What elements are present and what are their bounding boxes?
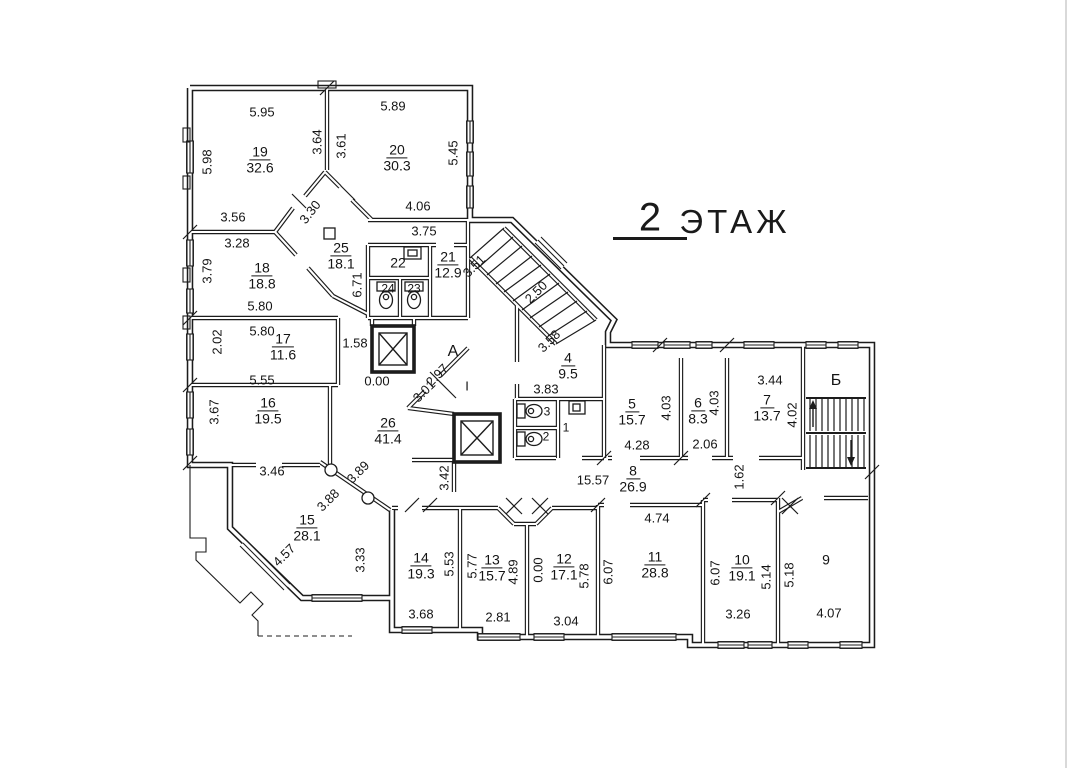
dimension-label: 5.55	[249, 373, 274, 388]
room-label: 1619.5	[254, 395, 281, 426]
column-icon	[324, 228, 335, 239]
dimension-label: 4.89	[506, 559, 521, 584]
room-area: 13.7	[753, 409, 780, 424]
dimension-label: 2.02	[210, 329, 225, 354]
floor-number: 2	[639, 196, 661, 241]
room-number: 25	[330, 240, 352, 256]
room-label: 1128.8	[641, 549, 668, 580]
door-pivot-icon	[325, 464, 337, 476]
room-number: 26	[377, 415, 399, 431]
dimension-label: 1.62	[732, 464, 747, 489]
dimension-label: 5.80	[247, 299, 272, 314]
room-number: 24	[381, 283, 394, 296]
room-area: 41.4	[374, 432, 401, 447]
room-number: 20	[386, 142, 408, 158]
room-number: 13	[481, 552, 503, 568]
room-label: 1818.8	[248, 260, 275, 291]
room-label: 515.7	[618, 396, 645, 427]
room-label: 1	[563, 422, 570, 435]
room-label: 9	[822, 552, 830, 567]
dimension-label: 4.07	[816, 606, 841, 621]
dimension-label: 3.75	[411, 224, 436, 239]
room-number: 23	[407, 283, 420, 296]
dimension-label: 3.46	[259, 464, 284, 479]
room-number: 12	[553, 551, 575, 567]
room-area: 15.7	[478, 569, 505, 584]
room-label: 2518.1	[327, 240, 354, 271]
room-number: 10	[731, 552, 753, 568]
room-label: 2030.3	[383, 142, 410, 173]
room-number: 11	[645, 549, 666, 565]
room-number: 2	[543, 431, 550, 444]
dimension-label: 5.14	[759, 564, 774, 589]
dimension-label: 4.06	[405, 199, 430, 214]
room-area: 9.5	[558, 367, 577, 382]
dimension-label: 4.03	[707, 390, 722, 415]
staircase-b-icon	[806, 398, 866, 468]
dimension-label: 3.83	[533, 382, 558, 397]
room-number: 21	[437, 249, 459, 265]
room-area: 19.5	[254, 412, 281, 427]
floor-plan-page: 2 ЭТАЖ А Б I 1932.6 2030.3 2518.1 22 211…	[0, 0, 1072, 768]
toilet-icon	[517, 404, 525, 418]
room-number: 8	[626, 463, 640, 479]
dimension-label: 3.68	[408, 607, 433, 622]
room-label: 1528.1	[293, 512, 320, 543]
room-label: 68.3	[688, 395, 707, 426]
room-number: 5	[625, 396, 639, 412]
axis-label: I	[465, 379, 469, 394]
room-label: 826.9	[619, 463, 646, 494]
dimension-label: 3.56	[220, 210, 245, 225]
dimension-label: 1.58	[342, 336, 367, 351]
dimension-label: 4.74	[644, 511, 669, 526]
dimension-label: 6.71	[350, 272, 365, 297]
room-area: 32.6	[246, 161, 273, 176]
dimension-label: 3.28	[224, 236, 249, 251]
room-label: 24	[381, 283, 394, 296]
room-number: 7	[760, 392, 774, 408]
dimension-label: 6.07	[708, 560, 723, 585]
room-number: 14	[410, 550, 432, 566]
room-number: 22	[390, 255, 406, 270]
dimension-label: 5.77	[465, 553, 480, 578]
dimension-label: 5.89	[380, 99, 405, 114]
room-area: 17.1	[550, 568, 577, 583]
dimension-label: 3.42	[437, 465, 452, 490]
dimension-label: 4.02	[785, 402, 800, 427]
dimension-label: 15.57	[577, 473, 610, 488]
room-area: 30.3	[383, 159, 410, 174]
axis-label: А	[448, 343, 459, 361]
dimension-label: 3.04	[553, 614, 578, 629]
room-area: 28.1	[293, 529, 320, 544]
room-area: 12.9	[434, 266, 461, 281]
dimension-label: 5.45	[446, 140, 461, 165]
toilet-icon	[517, 432, 525, 446]
floor-number-underline	[613, 237, 687, 240]
room-label: 49.5	[558, 350, 577, 381]
dimension-label: 3.33	[353, 547, 368, 572]
axis-label: Б	[831, 372, 842, 390]
room-label: 1419.3	[407, 550, 434, 581]
room-label: 22	[390, 255, 406, 270]
dimension-label: 5.98	[200, 149, 215, 174]
door-pivot-icon	[362, 492, 374, 504]
room-area: 19.1	[728, 569, 755, 584]
room-number: 17	[272, 331, 294, 347]
room-label: 1315.7	[478, 552, 505, 583]
room-area: 18.8	[248, 277, 275, 292]
room-area: 11.6	[270, 348, 296, 363]
room-label: 1217.1	[550, 551, 577, 582]
dimension-label: 3.64	[310, 129, 325, 154]
dimension-label: 5.18	[782, 562, 797, 587]
dimension-label: 5.78	[577, 563, 592, 588]
room-number: 16	[257, 395, 279, 411]
dimension-label: 2.81	[485, 610, 510, 625]
room-number: 3	[544, 406, 551, 419]
room-number: 9	[822, 552, 830, 567]
room-number: 4	[561, 350, 575, 366]
dimension-label: 5.95	[249, 105, 274, 120]
room-number: 6	[691, 395, 705, 411]
dimension-label: 2.06	[692, 437, 717, 452]
dimension-label: 5.80	[249, 324, 274, 339]
dimension-label: 5.53	[442, 551, 457, 576]
room-label: 2641.4	[374, 415, 401, 446]
room-label: 2112.9	[434, 249, 461, 280]
dimension-label: 4.03	[659, 395, 674, 420]
room-area: 19.3	[407, 567, 434, 582]
room-area: 18.1	[327, 257, 354, 272]
dimension-label: 6.07	[601, 559, 616, 584]
room-number: 1	[563, 422, 570, 435]
dimension-label: 3.61	[334, 133, 349, 158]
room-label: 3	[544, 406, 551, 419]
room-area: 28.8	[641, 566, 668, 581]
room-label: 23	[407, 283, 420, 296]
dimension-label: 3.26	[725, 607, 750, 622]
room-number: 18	[251, 260, 273, 276]
dimension-label: 0.00	[531, 557, 546, 582]
room-label: 2	[543, 431, 550, 444]
room-number: 15	[296, 512, 318, 528]
room-label: 1019.1	[728, 552, 755, 583]
room-area: 26.9	[619, 480, 646, 495]
dimension-label: 3.67	[207, 399, 222, 424]
room-label: 1932.6	[246, 144, 273, 175]
room-number: 19	[249, 144, 271, 160]
room-area: 8.3	[688, 412, 707, 427]
room-label: 713.7	[753, 392, 780, 423]
dimension-label: 0.00	[364, 374, 389, 389]
page-title: ЭТАЖ	[679, 203, 790, 241]
room-area: 15.7	[618, 413, 645, 428]
dimension-label: 3.44	[757, 373, 782, 388]
dimension-label: 3.79	[200, 258, 215, 283]
dimension-label: 4.28	[624, 438, 649, 453]
